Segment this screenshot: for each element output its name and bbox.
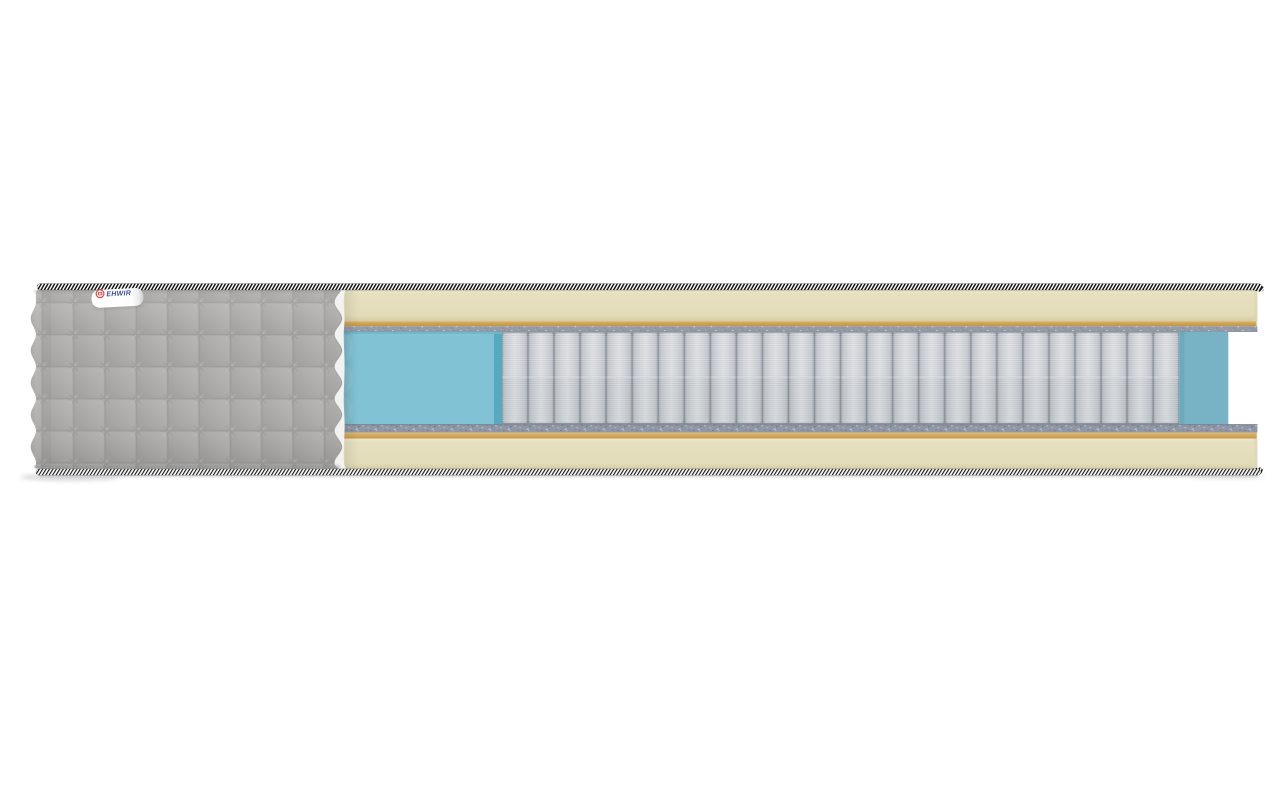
svg-text:EHWIR: EHWIR [106, 290, 131, 298]
